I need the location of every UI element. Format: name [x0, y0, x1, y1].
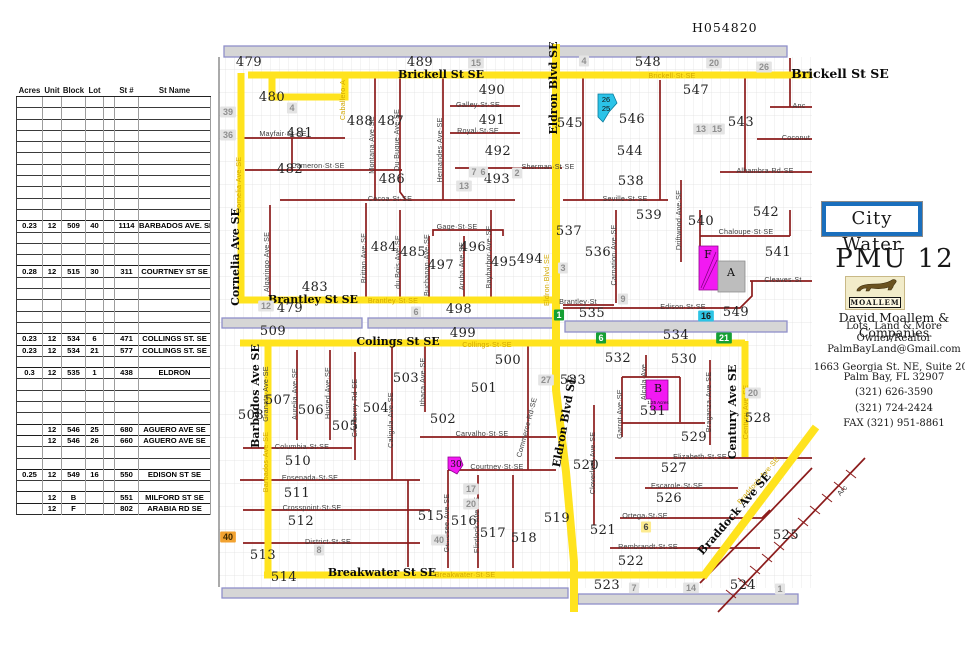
table-cell — [17, 413, 43, 424]
table-cell: F — [62, 503, 86, 514]
table-cell: 551 — [115, 492, 139, 503]
table-cell: 12 — [43, 334, 62, 345]
table-cell — [115, 153, 139, 164]
table-cell — [43, 176, 62, 187]
table-row — [17, 311, 211, 322]
table-cell — [115, 164, 139, 175]
table-cell — [115, 311, 139, 322]
table-cell — [62, 481, 86, 492]
lot-chip-number: 4 — [289, 103, 294, 113]
parcel-label: B — [654, 382, 662, 395]
table-cell — [62, 356, 86, 367]
lot-chip-number: 7 — [631, 583, 636, 593]
table-cell — [139, 164, 211, 175]
table-cell — [43, 255, 62, 266]
table-cell — [62, 458, 86, 469]
table-cell — [86, 492, 104, 503]
lot-chip-number: 4 — [581, 56, 586, 66]
table-cell — [17, 243, 43, 254]
block-number: 484 — [371, 240, 397, 255]
table-cell — [43, 209, 62, 220]
table-row — [17, 232, 211, 243]
block-number: 479 — [236, 55, 262, 70]
table-row — [17, 379, 211, 390]
table-cell — [115, 356, 139, 367]
table-cell — [86, 187, 104, 198]
table-row — [17, 289, 211, 300]
table-cell — [115, 322, 139, 333]
table-cell — [43, 153, 62, 164]
table-cell — [86, 277, 104, 288]
table-cell — [17, 356, 43, 367]
canal-bar — [222, 588, 568, 598]
table-cell: 471 — [115, 334, 139, 345]
table-cell — [17, 142, 43, 153]
block-number: 527 — [661, 461, 687, 476]
block-number: 518 — [511, 531, 537, 546]
table-row — [17, 390, 211, 401]
table-cell: 534 — [62, 345, 86, 356]
table-cell — [115, 176, 139, 187]
lot-chip-number: 20 — [709, 58, 719, 68]
fax-number: FAX (321) 951-8861 — [808, 418, 965, 429]
block-number: 522 — [618, 554, 644, 569]
block-number: 511 — [284, 486, 310, 501]
table-row — [17, 447, 211, 458]
block-number: 507 — [265, 393, 291, 408]
block-number: 524 — [730, 578, 756, 593]
lot-chip-number: 17 — [466, 484, 476, 494]
table-cell — [115, 277, 139, 288]
table-cell — [43, 413, 62, 424]
block-number: 499 — [450, 326, 476, 341]
table-cell — [17, 503, 43, 514]
table-cell — [104, 108, 115, 119]
lot-chip-number: 6 — [598, 333, 603, 343]
table-cell — [104, 232, 115, 243]
block-number: 535 — [579, 306, 605, 321]
table-cell — [104, 469, 115, 480]
highlighted-street-name-label: Brantley·St·SE — [368, 296, 418, 305]
table-cell — [17, 130, 43, 141]
parcel-label: F — [704, 248, 712, 261]
lot-chip-number: 12 — [261, 301, 271, 311]
table-cell — [62, 413, 86, 424]
table-cell — [86, 209, 104, 220]
table-cell — [86, 108, 104, 119]
company-tagline: Lots, Land & More — [808, 321, 965, 332]
table-cell: 0.3 — [17, 368, 43, 379]
table-cell — [17, 447, 43, 458]
table-cell — [139, 311, 211, 322]
table-cell — [86, 164, 104, 175]
table-cell — [62, 243, 86, 254]
block-number: 503 — [393, 371, 419, 386]
block-number: 516 — [451, 514, 477, 529]
table-cell: 546 — [62, 435, 86, 446]
table-cell — [43, 402, 62, 413]
table-cell — [17, 481, 43, 492]
table-cell — [86, 243, 104, 254]
block-number: 540 — [688, 214, 714, 229]
table-cell — [115, 289, 139, 300]
table-row — [17, 153, 211, 164]
table-cell — [104, 130, 115, 141]
table-cell: 535 — [62, 368, 86, 379]
table-cell — [86, 379, 104, 390]
table-cell — [104, 481, 115, 492]
table-cell — [139, 198, 211, 209]
table-cell — [86, 413, 104, 424]
lot-chip-number: 15 — [471, 58, 481, 68]
table-row: 1254625680AGUERO AVE SE — [17, 424, 211, 435]
street-name-label: Crosspoint·St·SE — [283, 503, 342, 512]
table-cell — [86, 232, 104, 243]
table-row — [17, 481, 211, 492]
table-cell — [62, 289, 86, 300]
block-number: 495 — [491, 255, 517, 270]
table-cell: 550 — [115, 469, 139, 480]
table-cell — [115, 232, 139, 243]
highlighted-street-name-label: Breakwater·St·SE — [435, 570, 496, 579]
table-row — [17, 198, 211, 209]
block-number: 543 — [728, 115, 754, 130]
table-cell — [86, 130, 104, 141]
lot-chip-number: 36 — [223, 130, 233, 140]
table-cell — [104, 153, 115, 164]
table-cell — [86, 356, 104, 367]
block-number: 532 — [605, 351, 631, 366]
address-line2: Palm Bay, FL 32907 — [808, 372, 965, 383]
table-row — [17, 402, 211, 413]
major-street-label: Barbados Ave SE — [249, 344, 262, 448]
block-number: 504 — [363, 401, 389, 416]
table-cell — [62, 176, 86, 187]
block-number: 508 — [238, 408, 264, 423]
block-number: 531 — [640, 404, 666, 419]
street-name-label: Edison·St·SE — [660, 302, 706, 311]
table-cell — [43, 97, 62, 108]
table-row — [17, 356, 211, 367]
table-cell — [17, 311, 43, 322]
table-cell — [62, 447, 86, 458]
table-cell — [104, 142, 115, 153]
email-text: PalmBayLand@Gmail.com — [808, 344, 965, 355]
phone-2: (321) 724-2424 — [808, 403, 965, 414]
column-header: St # — [115, 86, 139, 97]
table-row — [17, 458, 211, 469]
table-cell — [104, 209, 115, 220]
table-cell — [43, 187, 62, 198]
lot-chip-number: 9 — [620, 294, 625, 304]
block-number: 515 — [418, 509, 444, 524]
column-header: St Name — [139, 86, 211, 97]
table-cell — [104, 368, 115, 379]
table-cell — [62, 255, 86, 266]
plat-map-document: H054820 AcresUnitBlockLotSt #St Name0.23… — [0, 0, 965, 648]
block-number: 525 — [773, 528, 799, 543]
table-cell — [86, 142, 104, 153]
lot-chip-number: 27 — [541, 375, 551, 385]
table-row — [17, 164, 211, 175]
street-name-label: District·St·SE — [305, 537, 351, 546]
table-cell: 12 — [43, 266, 62, 277]
block-number: 530 — [671, 352, 697, 367]
table-cell — [86, 198, 104, 209]
table-cell: 12 — [43, 345, 62, 356]
table-cell: 546 — [62, 424, 86, 435]
parcel-table: AcresUnitBlockLotSt #St Name0.2312509401… — [16, 86, 211, 515]
table-cell — [139, 176, 211, 187]
table-cell — [104, 187, 115, 198]
table-cell — [139, 153, 211, 164]
table-cell — [139, 130, 211, 141]
block-number: 482 — [277, 162, 303, 177]
parcel-label: 30 — [450, 460, 462, 470]
block-number: 485 — [400, 245, 426, 260]
table-cell — [86, 322, 104, 333]
street-name-label: Sherman·St·SE — [522, 162, 575, 171]
table-cell — [115, 458, 139, 469]
table-cell — [17, 424, 43, 435]
table-cell — [104, 458, 115, 469]
table-cell — [17, 300, 43, 311]
table-cell — [43, 458, 62, 469]
table-cell — [115, 300, 139, 311]
table-cell — [139, 209, 211, 220]
table-cell — [86, 176, 104, 187]
block-number: 542 — [753, 205, 779, 220]
table-cell — [104, 300, 115, 311]
block-number: 533 — [560, 373, 586, 388]
street-name-label: Husted·Ave·SE — [323, 367, 332, 419]
table-cell — [139, 289, 211, 300]
table-cell — [115, 413, 139, 424]
table-cell — [17, 119, 43, 130]
lot-chip-number: 20 — [748, 388, 758, 398]
table-row: 0.251254916550EDISON ST SE — [17, 469, 211, 480]
block-number: 536 — [585, 245, 611, 260]
table-cell: 534 — [62, 334, 86, 345]
table-cell — [139, 232, 211, 243]
table-cell — [104, 198, 115, 209]
table-cell — [43, 481, 62, 492]
street-name-label: Ithaca·Ave·SE — [418, 358, 427, 407]
table-cell — [115, 142, 139, 153]
table-cell — [43, 198, 62, 209]
table-row: 0.281251530311COURTNEY ST SE — [17, 266, 211, 277]
table-cell: COURTNEY ST SE — [139, 266, 211, 277]
table-cell — [17, 187, 43, 198]
table-cell — [17, 390, 43, 401]
block-number: 521 — [590, 523, 616, 538]
table-cell — [43, 289, 62, 300]
street-name-label: Garrot·Ave·SE — [615, 389, 624, 439]
table-cell: 40 — [86, 221, 104, 232]
block-number: 486 — [379, 172, 405, 187]
table-cell — [115, 97, 139, 108]
street-name-label: Alhambra·Rd·SE — [736, 166, 793, 175]
block-number: 545 — [557, 116, 583, 131]
table-row: 0.23125346471COLLINGS ST. SE — [17, 334, 211, 345]
table-cell: B — [62, 492, 86, 503]
block-number: 510 — [285, 454, 311, 469]
table-cell — [139, 277, 211, 288]
block-number: 509 — [260, 324, 286, 339]
table-cell — [86, 503, 104, 514]
block-number: 487 — [378, 114, 404, 129]
owner-role: Owner/Realtor — [808, 333, 965, 344]
block-number: 548 — [635, 55, 661, 70]
table-cell — [17, 108, 43, 119]
highlighted-street-name-label: Collings·St·SE — [462, 340, 512, 349]
table-row: 0.3125351438ELDRON — [17, 368, 211, 379]
highlighted-street-name-label: Caballero·A — [338, 80, 347, 120]
major-street-label: Brickell St SE — [791, 66, 889, 81]
table-cell — [104, 334, 115, 345]
table-cell — [43, 390, 62, 401]
table-row — [17, 300, 211, 311]
table-cell — [104, 435, 115, 446]
table-cell — [86, 481, 104, 492]
lot-chip-number: 21 — [719, 333, 729, 343]
phone-1: (321) 626-3590 — [808, 387, 965, 398]
block-number: 546 — [619, 112, 645, 127]
table-cell — [115, 209, 139, 220]
table-cell: COLLINGS ST. SE — [139, 345, 211, 356]
block-number: 549 — [723, 305, 749, 320]
table-cell — [17, 277, 43, 288]
table-cell — [62, 311, 86, 322]
highlighted-street-name-label: Barbados·Ave·SE — [261, 432, 270, 492]
table-cell — [115, 187, 139, 198]
table-row — [17, 130, 211, 141]
block-number: 479 — [277, 301, 303, 316]
table-cell — [43, 447, 62, 458]
table-cell — [43, 232, 62, 243]
table-cell: 12 — [43, 503, 62, 514]
street-name-label: Courtney·St·SE — [470, 462, 523, 471]
table-cell — [104, 221, 115, 232]
lot-chip-number: 14 — [686, 583, 696, 593]
table-cell — [139, 413, 211, 424]
table-row: 1254626660AGUERO AVE SE — [17, 435, 211, 446]
street-name-label: Alcala·Ave — [639, 364, 648, 400]
block-number: 513 — [250, 548, 276, 563]
table-cell — [104, 424, 115, 435]
table-cell — [104, 390, 115, 401]
table-cell: 0.23 — [17, 345, 43, 356]
table-cell: 0.28 — [17, 266, 43, 277]
table-cell — [17, 97, 43, 108]
table-row — [17, 209, 211, 220]
table-cell: 16 — [86, 469, 104, 480]
table-cell — [43, 300, 62, 311]
table-cell — [43, 130, 62, 141]
table-cell: 12 — [43, 469, 62, 480]
table-cell — [104, 164, 115, 175]
table-cell — [115, 402, 139, 413]
table-cell — [43, 356, 62, 367]
table-cell — [104, 277, 115, 288]
street-name-label: Columbia·St·SE — [275, 442, 329, 451]
street-name-label: Ortega·St·SE — [622, 511, 668, 520]
table-cell — [62, 390, 86, 401]
table-cell — [17, 255, 43, 266]
table-cell — [62, 402, 86, 413]
parcel-label: A — [726, 266, 736, 279]
moallem-logo: MOALLEM — [845, 276, 905, 310]
block-number: 519 — [544, 511, 570, 526]
block-number: 541 — [765, 245, 791, 260]
table-cell — [115, 390, 139, 401]
table-cell — [17, 435, 43, 446]
lot-chip-number: 16 — [701, 311, 711, 321]
highlighted-street-name-label: Brickell·St·SE — [648, 71, 695, 80]
table-cell — [139, 379, 211, 390]
pmu-label: PMU 12 — [820, 244, 965, 274]
block-number: 537 — [556, 224, 582, 239]
table-cell — [86, 289, 104, 300]
block-number: 480 — [259, 90, 285, 105]
table-cell — [86, 153, 104, 164]
table-cell — [115, 108, 139, 119]
table-cell: 549 — [62, 469, 86, 480]
block-number: 498 — [446, 302, 472, 317]
table-cell — [104, 503, 115, 514]
table-cell — [86, 458, 104, 469]
table-row — [17, 176, 211, 187]
table-cell — [17, 402, 43, 413]
table-cell: 21 — [86, 345, 104, 356]
table-cell — [115, 198, 139, 209]
table-cell — [43, 379, 62, 390]
table-cell — [43, 142, 62, 153]
block-number: 506 — [298, 403, 324, 418]
lot-chip-number: 13 — [696, 124, 706, 134]
table-cell — [17, 232, 43, 243]
table-cell — [62, 277, 86, 288]
table-row — [17, 187, 211, 198]
table-cell — [104, 119, 115, 130]
table-cell — [139, 243, 211, 254]
block-number: 491 — [479, 113, 505, 128]
table-cell — [139, 402, 211, 413]
table-row: 12B551MILFORD ST SE — [17, 492, 211, 503]
table-cell — [86, 390, 104, 401]
street-name-label: Galley·St·SE — [456, 100, 500, 109]
lot-chip-number: 13 — [459, 181, 469, 191]
table-cell: 660 — [115, 435, 139, 446]
table-cell — [17, 176, 43, 187]
table-cell — [86, 447, 104, 458]
table-cell — [62, 232, 86, 243]
table-row: 0.231253421577COLLINGS ST. SE — [17, 345, 211, 356]
block-number: 529 — [681, 430, 707, 445]
table-cell: AGUERO AVE SE — [139, 424, 211, 435]
street-name-label: Driftwood·Ave·SE — [674, 190, 683, 250]
table-cell — [43, 164, 62, 175]
canal-bar — [224, 46, 787, 57]
table-cell — [104, 345, 115, 356]
block-number: 538 — [618, 174, 644, 189]
table-cell — [139, 108, 211, 119]
table-cell — [17, 153, 43, 164]
street-name-label: Seville·St·SE — [603, 194, 648, 203]
table-cell — [62, 108, 86, 119]
table-row — [17, 108, 211, 119]
column-header: Unit — [43, 86, 62, 97]
